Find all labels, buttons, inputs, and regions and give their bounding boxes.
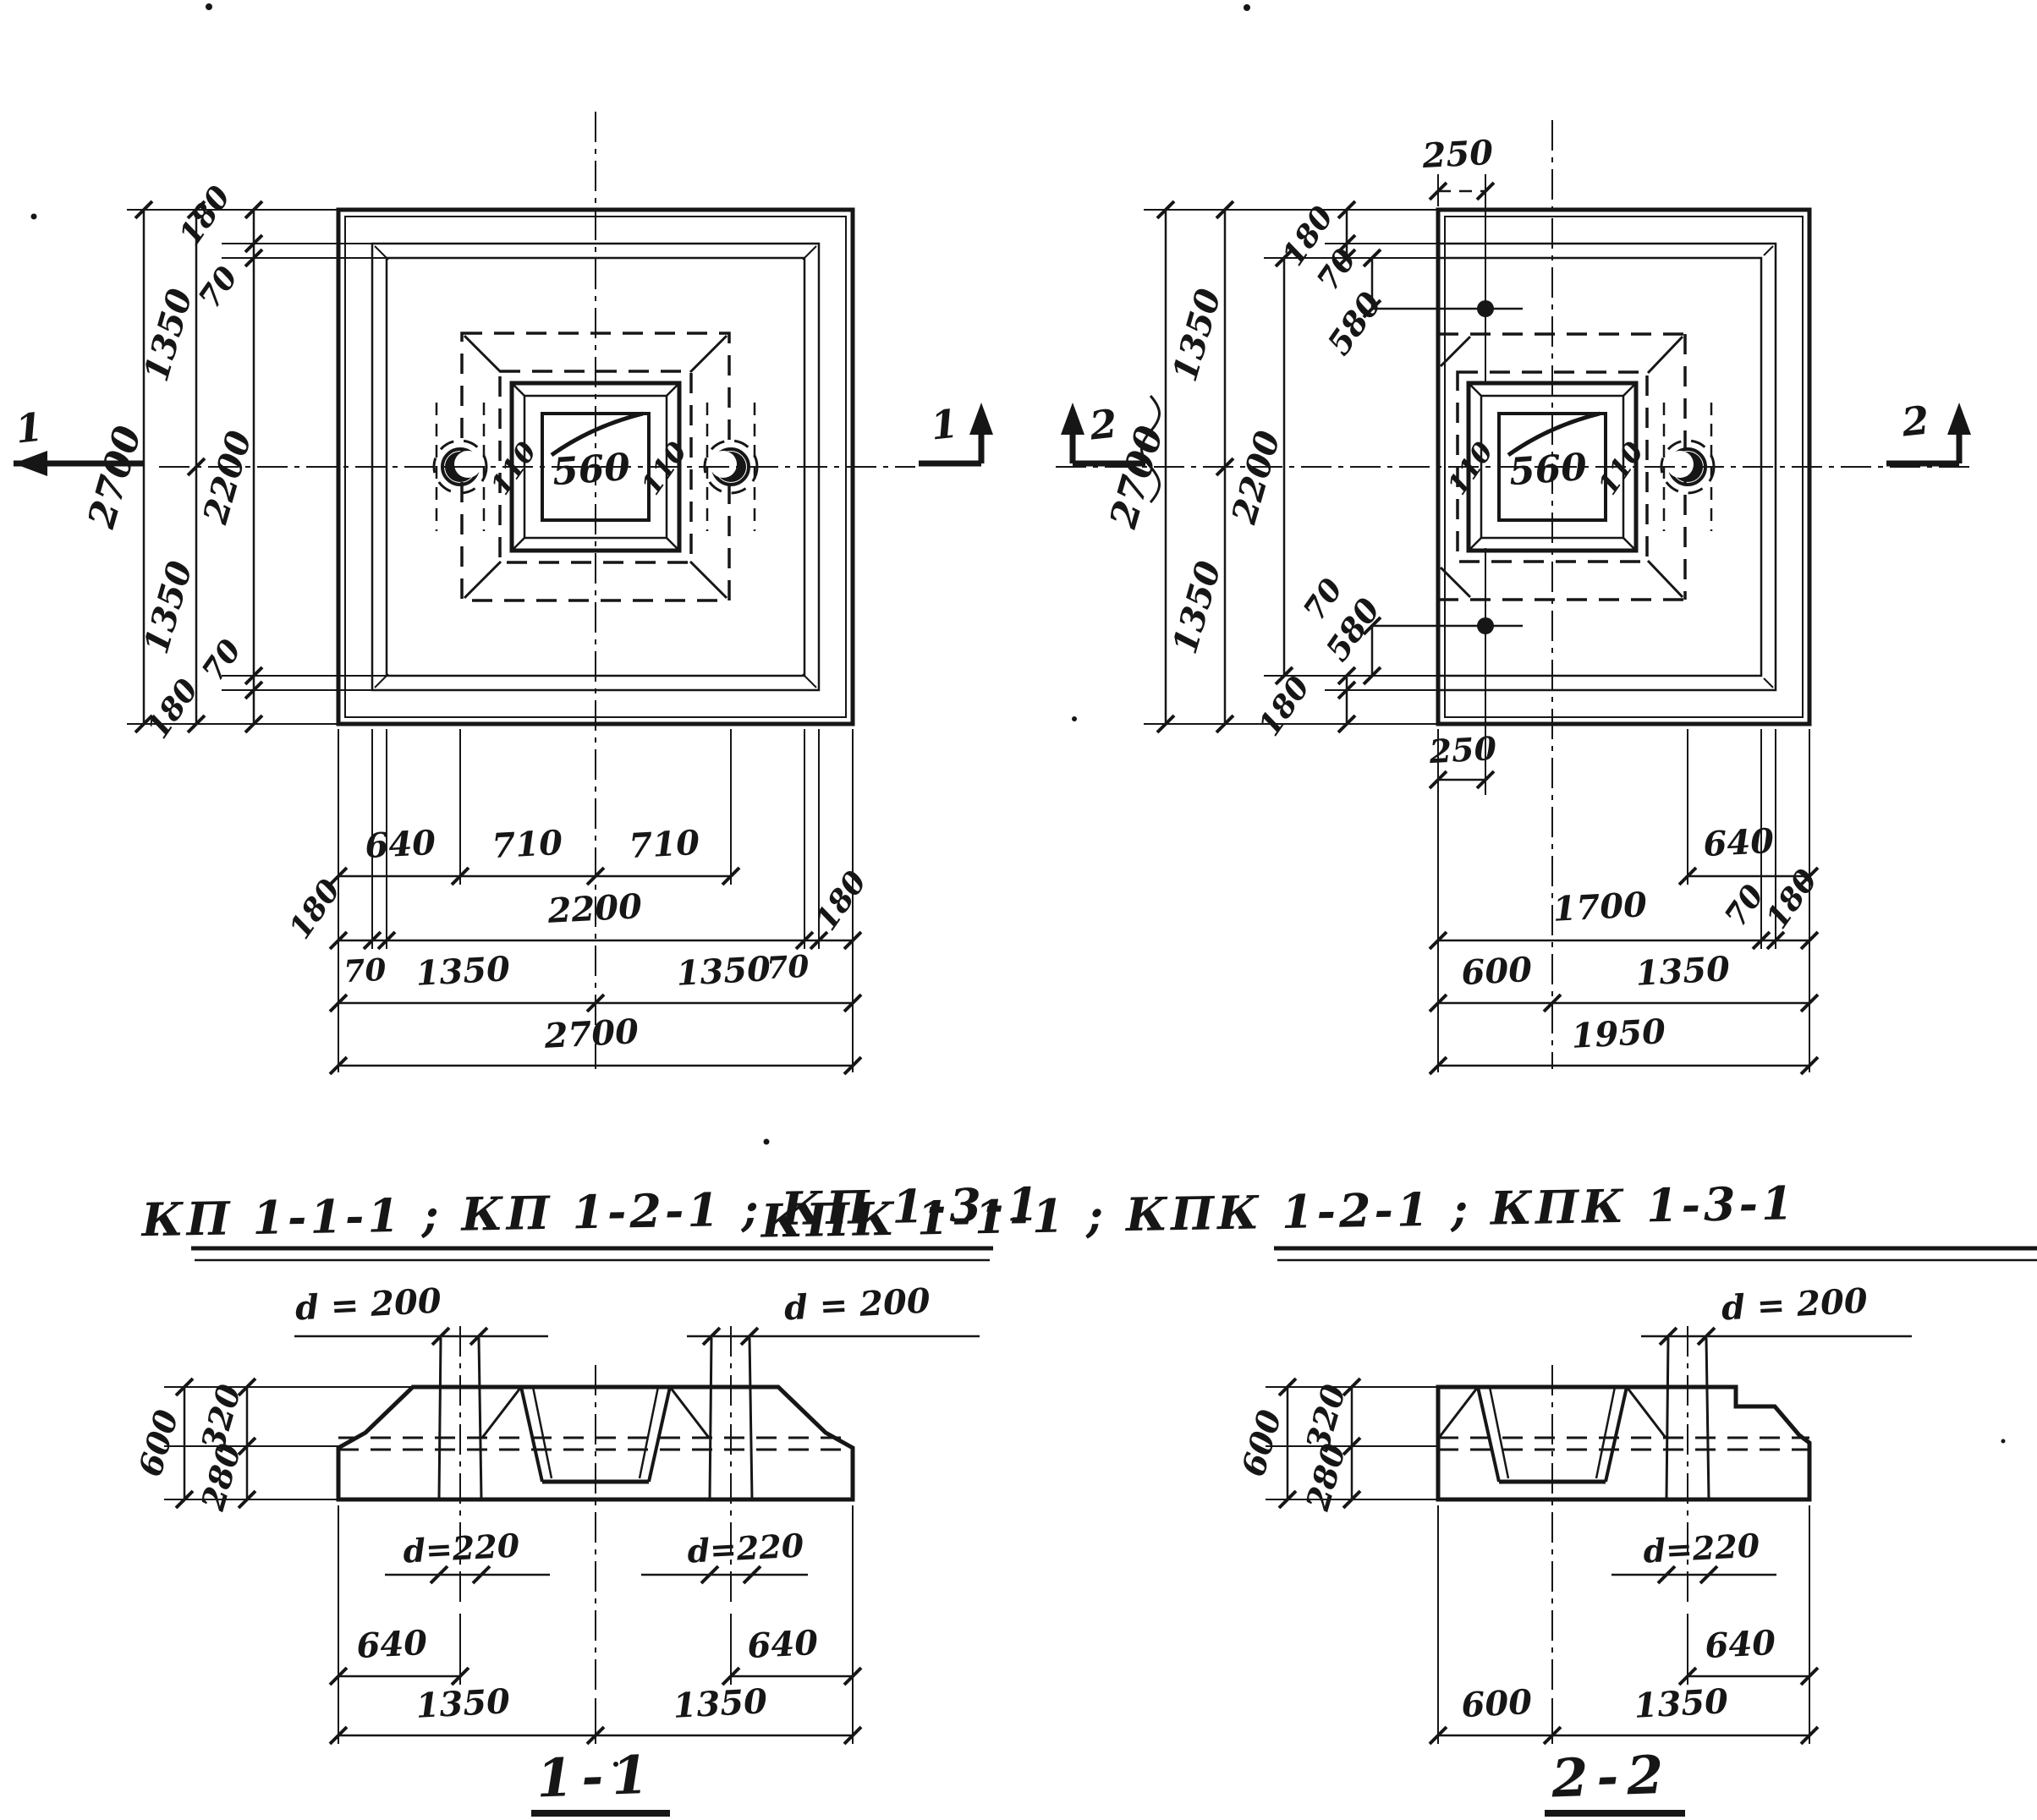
section-1-1: d = 200 d = 200 d=220 d=220 600 320 280 — [130, 1281, 980, 1813]
left-plan-centerlines — [159, 112, 915, 1069]
dim-280-left: 280 — [1298, 1439, 1353, 1515]
dim-640: 640 — [1704, 1623, 1776, 1666]
dim-1350-bottom: 1350 — [1165, 556, 1229, 658]
dim-1350-row-right: 1350 — [675, 949, 771, 994]
dim-1350-left: 1350 — [415, 1681, 511, 1726]
section-1-1-dimensions: d = 200 d = 200 d=220 d=220 600 320 280 — [130, 1281, 980, 1744]
dim-580-anchor-top: 580 — [1320, 284, 1390, 361]
dim-640-left: 640 — [355, 1623, 428, 1666]
dim-2700-row: 2700 — [542, 1011, 640, 1056]
dim-d220: d=220 — [1642, 1526, 1760, 1570]
right-plan: 560 110 110 2 — [1056, 120, 1971, 1074]
anchor-point-top — [1372, 300, 1523, 317]
dim-180-top: 180 — [172, 179, 238, 252]
dim-600-row: 600 — [1460, 1682, 1533, 1725]
right-plan-dimensions: 250 1350 2700 2200 1350 180 70 — [1101, 133, 1825, 1074]
dim-600-left: 600 — [1233, 1405, 1288, 1480]
dim-1700: 1700 — [1551, 885, 1648, 929]
dim-250-bottom: 250 — [1428, 729, 1498, 770]
socket-size-label: 560 — [1507, 446, 1589, 494]
dim-280-left: 280 — [193, 1439, 249, 1515]
dim-640-right: 640 — [746, 1623, 819, 1666]
section-1-1-centerlines — [460, 1326, 731, 1696]
dim-600-row: 600 — [1460, 950, 1533, 993]
dim-70-row-left: 70 — [343, 952, 387, 990]
dim-1950-row: 1950 — [1570, 1011, 1666, 1056]
section-1-1-title: 1-1 — [535, 1744, 657, 1810]
dim-70-row-right: 70 — [766, 949, 810, 987]
section-2-2: d = 200 d=220 600 320 280 640 600 1350 — [1233, 1281, 1912, 1813]
dim-d220-right: d=220 — [686, 1526, 804, 1570]
foundation-drawing: 560 110 110 1 — [0, 0, 2037, 1820]
plan-titles: КП 1-1-1 ; КП 1-2-1 ; КП 1-3-1 КПК 1-1-1… — [140, 1176, 2037, 1260]
section-2-2-body — [1438, 1338, 1809, 1499]
dim-640: 640 — [1702, 821, 1775, 864]
left-plan-dimensions: 180 70 1350 2700 2200 1350 70 180 640 71… — [80, 179, 874, 1074]
section-2-label-right: 2 — [1899, 397, 1931, 446]
dim-2200-row: 2200 — [546, 886, 643, 931]
dim-2200-left: 2200 — [1224, 426, 1288, 529]
dim-1350-row-left: 1350 — [415, 949, 511, 994]
section-1-label-right: 1 — [929, 401, 960, 449]
dim-2700-left: 2700 — [80, 421, 150, 534]
section-1-label-left: 1 — [14, 404, 45, 452]
dim-d200: d = 200 — [1721, 1281, 1869, 1329]
socket-size-label: 560 — [551, 446, 632, 494]
section-mark-1-right: 1 — [919, 401, 993, 463]
dim-d200-left: d = 200 — [294, 1281, 442, 1329]
anchor-point-bottom — [1372, 617, 1523, 634]
dim-1350-top: 1350 — [1165, 284, 1229, 386]
dim-180-anchor-bottom: 180 — [1251, 670, 1317, 743]
dim-2200-left: 2200 — [195, 426, 260, 529]
dim-1350-row: 1350 — [1634, 949, 1731, 994]
dim-600-left: 600 — [130, 1405, 185, 1480]
dim-70-row: 70 — [1718, 879, 1771, 934]
section-mark-2-right: 2 — [1886, 397, 1971, 463]
dim-d200-right: d = 200 — [783, 1281, 931, 1329]
blueprint-page: 560 110 110 1 — [0, 0, 2037, 1820]
dim-710-right: 710 — [628, 823, 700, 866]
socket-wall-label-right: 110 — [1591, 436, 1650, 501]
section-2-2-title: 2-2 — [1550, 1744, 1672, 1810]
socket-wall-label-left: 110 — [1441, 436, 1499, 501]
dim-1350-bottom: 1350 — [136, 556, 200, 658]
dim-70-bottom: 70 — [195, 633, 249, 688]
section-2-2-dimensions: d = 200 d=220 600 320 280 640 600 1350 — [1233, 1281, 1912, 1744]
dim-250-top: 250 — [1420, 133, 1494, 176]
dim-640: 640 — [364, 823, 436, 866]
left-plan: 560 110 110 1 — [14, 112, 993, 1074]
dim-1350-right: 1350 — [672, 1681, 768, 1726]
socket-wall-label-right: 110 — [634, 436, 693, 501]
dim-710-left: 710 — [491, 823, 563, 866]
dim-d220-left: d=220 — [402, 1526, 520, 1570]
dim-1350-top: 1350 — [136, 284, 200, 386]
dim-1350-row: 1350 — [1633, 1681, 1729, 1726]
socket-wall-label-left: 110 — [484, 436, 542, 501]
section-2-label-left: 2 — [1087, 401, 1119, 449]
dim-70-top: 70 — [192, 260, 245, 315]
